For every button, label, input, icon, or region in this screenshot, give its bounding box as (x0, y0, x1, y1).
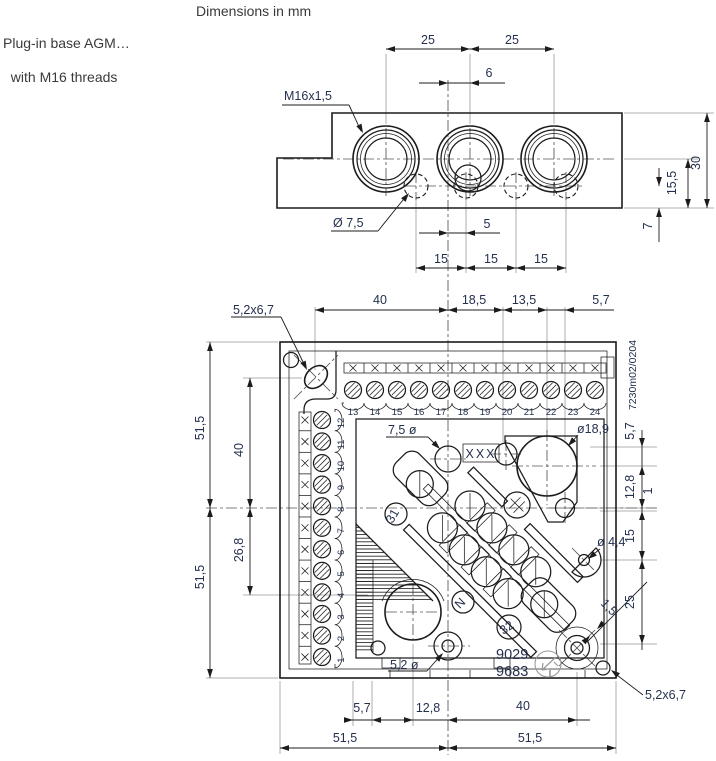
keying-symbol-icon (504, 492, 530, 518)
contact-band (366, 426, 601, 661)
terminal-number: 3 (336, 614, 347, 619)
dim-label: 15 (434, 252, 448, 266)
slot-callout-bottom: 5,2x6,7 (645, 688, 686, 702)
hole-52-callout: 5,2 ø (390, 658, 419, 672)
terminal-number: 24 (590, 407, 601, 418)
hole-75-bottom-callout: 7,5 ø (388, 423, 417, 437)
dim-label: 51,5 (333, 731, 357, 745)
drawing-page: Dimensions in mm Plug-in base AGM… with … (0, 0, 716, 761)
dim-label: 12,8 (416, 701, 440, 715)
dim-label: 40 (373, 293, 387, 307)
stamp-icon (535, 651, 561, 677)
terminal-number: 16 (414, 407, 425, 418)
terminal-number: 20 (502, 407, 513, 418)
hole-189-callout: ø18,9 (577, 422, 609, 436)
terminal-number: 18 (458, 407, 469, 418)
dim-label: 5,7 (592, 293, 609, 307)
dim-label: 7 (641, 222, 655, 229)
dim-label: 1 (641, 487, 655, 494)
thread-label: M16x1,5 (284, 89, 332, 103)
terminal-number: 10 (336, 461, 347, 472)
hole-75-callout: Ø 7,5 (333, 216, 364, 230)
terminal-number: 22 (546, 407, 557, 418)
dim-label: 5 (484, 217, 491, 231)
hole-44-callout: ø 4,4 (597, 535, 626, 549)
terminal-number: 15 (392, 407, 403, 418)
dim-label: 26,8 (232, 538, 246, 562)
dim-label: 51,5 (193, 416, 207, 440)
terminal-number: 5 (336, 571, 347, 576)
dim-label: 15 (484, 252, 498, 266)
marking-label: XXX (465, 447, 496, 461)
terminal-number: 11 (336, 440, 347, 450)
dim-label: 6 (486, 66, 493, 80)
terminal-number: 21 (524, 407, 535, 418)
terminal-number: 12 (336, 418, 347, 429)
dim-label: 51,5 (518, 731, 542, 745)
top-view (277, 113, 622, 208)
terminal-number: 13 (348, 407, 359, 418)
terminal-number: 2 (336, 636, 347, 641)
terminal-number: 6 (336, 550, 347, 555)
terminal-number: 14 (370, 407, 381, 418)
code-line: 9683 (496, 664, 528, 680)
dim-label: 15 (534, 252, 548, 266)
dim-label: 12,8 (623, 475, 637, 499)
terminal-number: 4 (336, 593, 347, 598)
dim-label: 40 (232, 443, 246, 457)
terminal-number: 8 (336, 507, 347, 512)
dim-label: 13,5 (512, 293, 536, 307)
terminal-number: 19 (480, 407, 491, 418)
dim-label: 25 (505, 33, 519, 47)
dim-label: 5,7 (353, 701, 370, 715)
dim-label: 40 (516, 699, 530, 713)
dim-label: 25 (421, 33, 435, 47)
slot-callout-top: 5,2x6,7 (233, 303, 274, 317)
dim-label: 51,5 (193, 565, 207, 589)
terminal-number: 23 (568, 407, 579, 418)
technical-drawing: 131415161718192021222324121110987654321X… (0, 0, 716, 761)
terminal-number: 1 (336, 657, 347, 662)
terminal-number: 7 (336, 528, 347, 533)
dim-label: 5,7 (623, 422, 637, 439)
terminal-number: 9 (336, 485, 347, 490)
dim-label: 15,5 (665, 171, 679, 195)
dim-label: 18,5 (462, 293, 486, 307)
dim-label: 25 (623, 595, 637, 609)
dim-label: 30 (689, 156, 703, 170)
doc-number: 7230m02/0204 (627, 340, 639, 410)
terminal-number: 17 (436, 407, 447, 418)
